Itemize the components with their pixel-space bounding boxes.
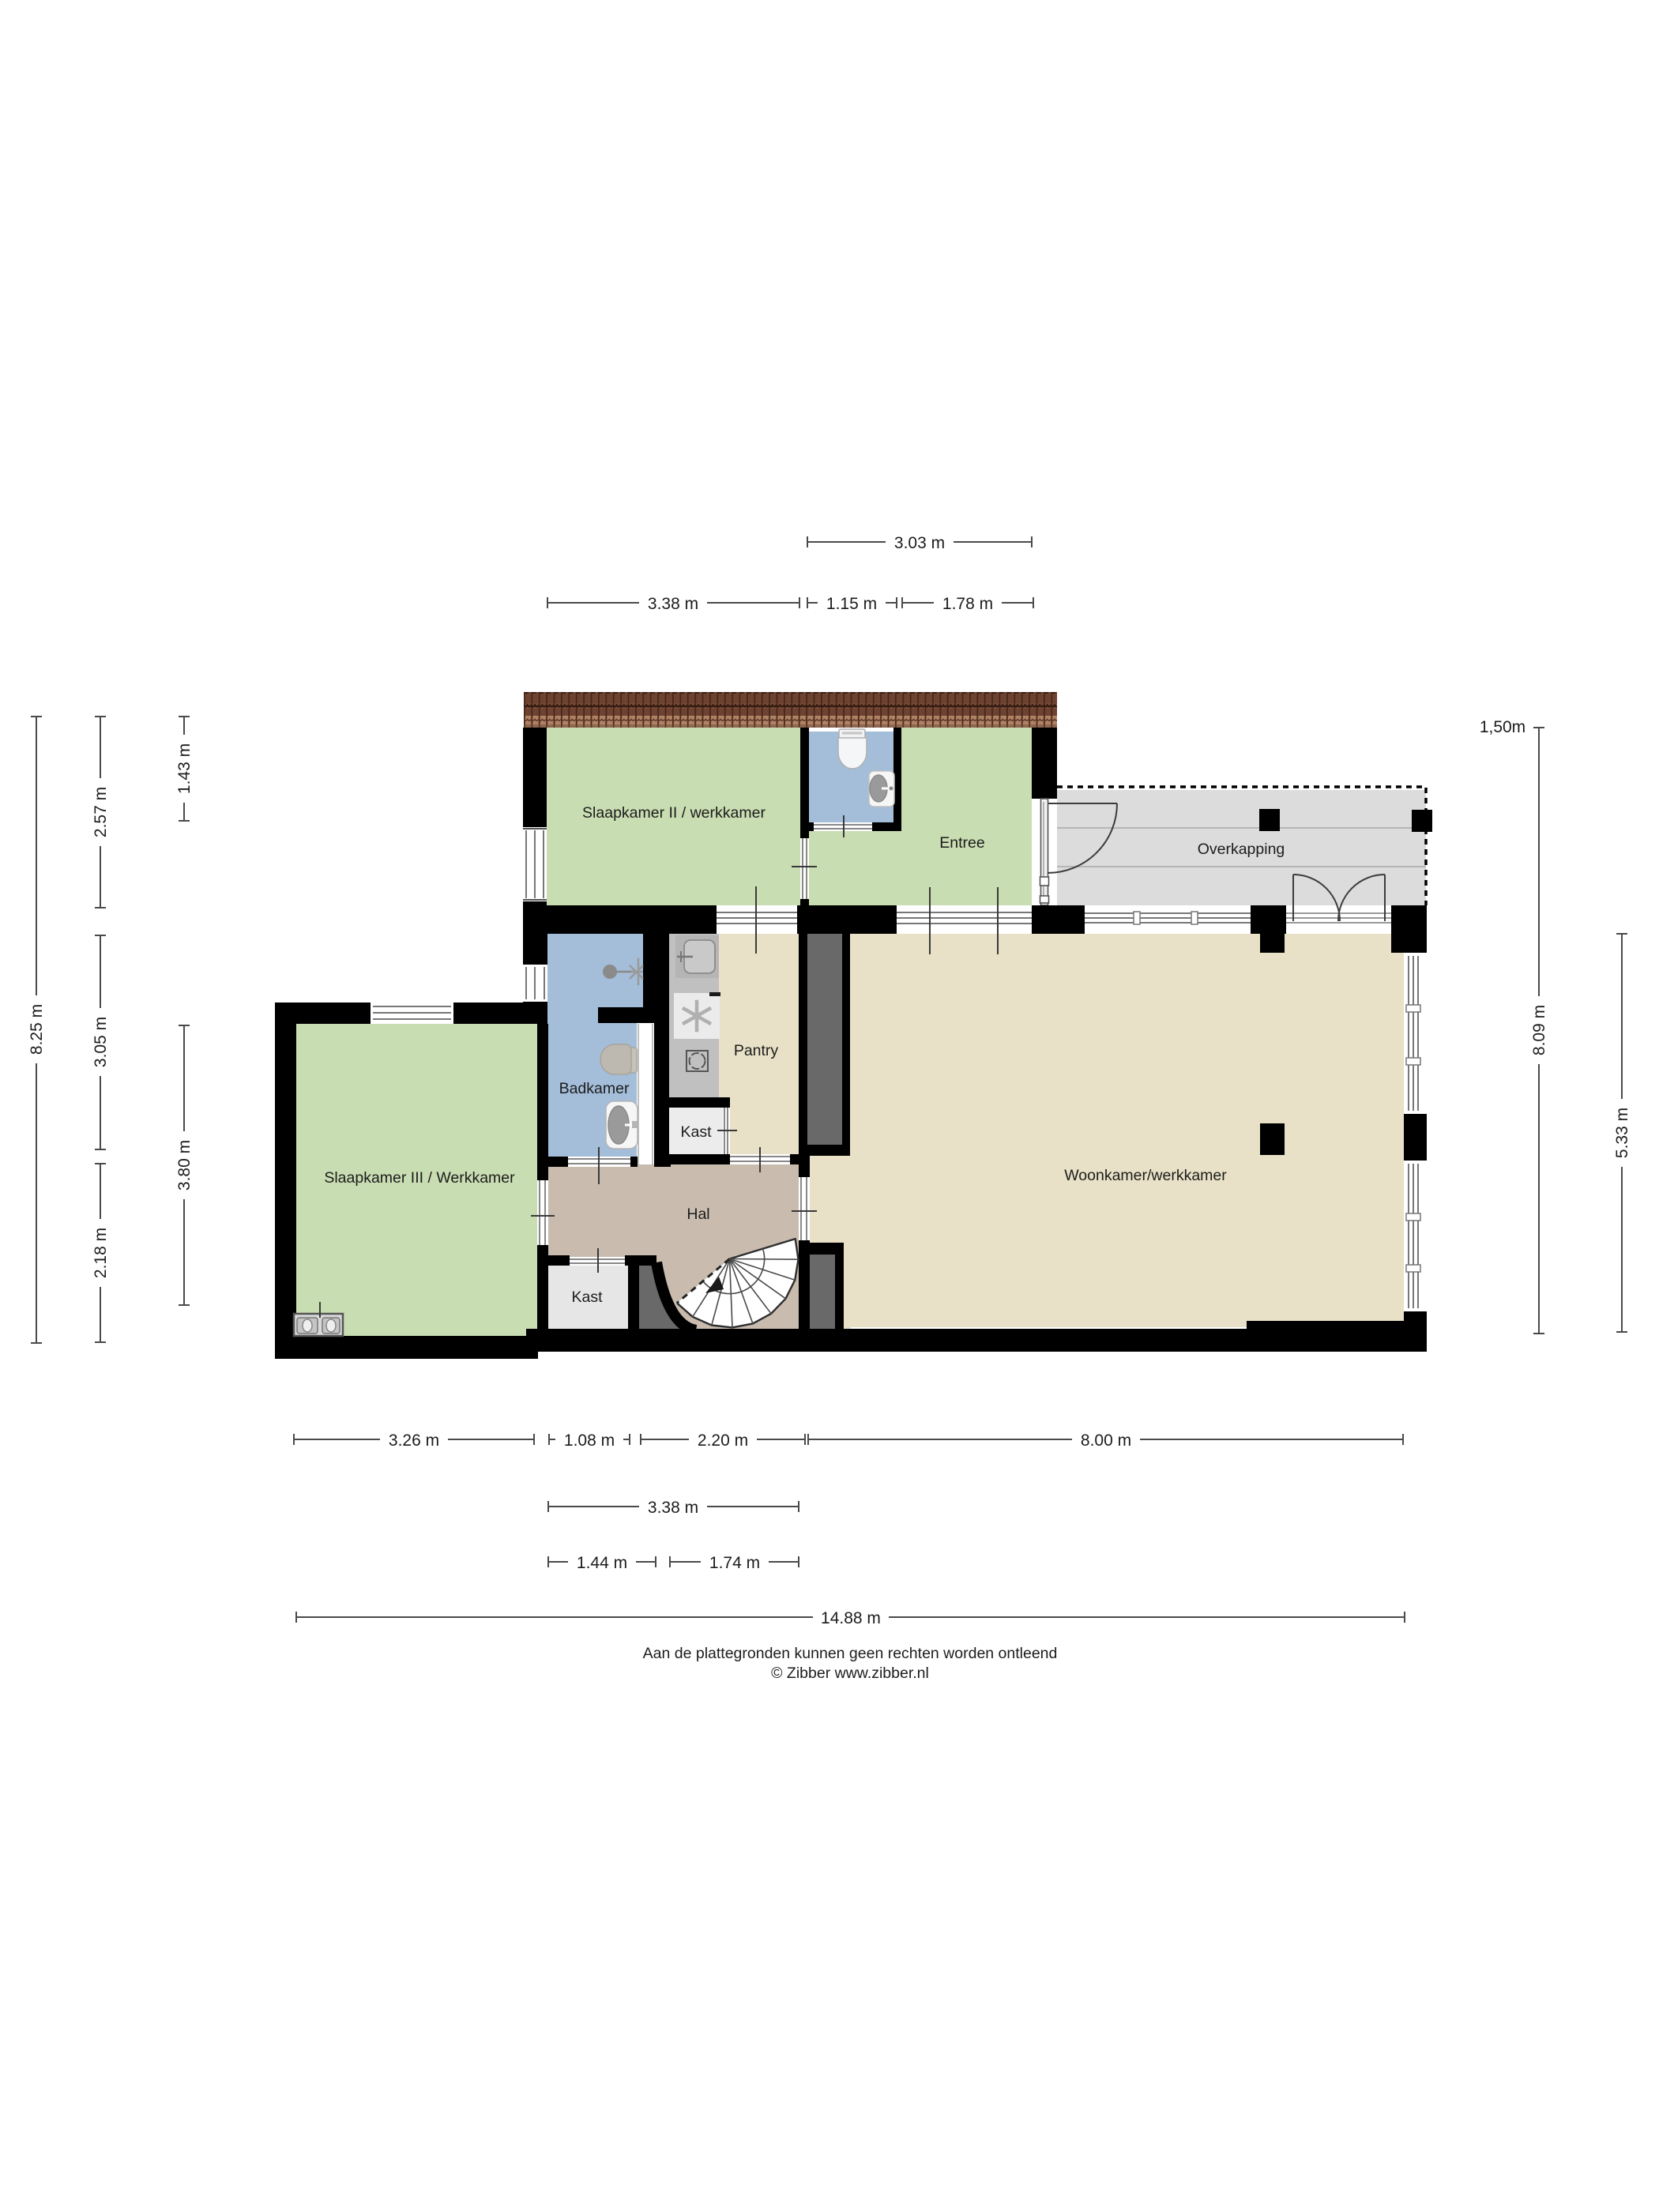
svg-text:Woonkamer/werkkamer: Woonkamer/werkkamer — [1064, 1167, 1227, 1184]
svg-text:Badkamer: Badkamer — [559, 1080, 630, 1097]
svg-text:Overkapping: Overkapping — [1198, 841, 1285, 858]
svg-text:© Zibber www.zibber.nl: © Zibber www.zibber.nl — [771, 1665, 929, 1682]
svg-text:Pantry: Pantry — [734, 1042, 779, 1059]
svg-text:8.09 m: 8.09 m — [1530, 1005, 1548, 1055]
svg-text:1.15 m: 1.15 m — [826, 595, 877, 613]
svg-text:5.33 m: 5.33 m — [1613, 1108, 1631, 1158]
svg-text:14.88 m: 14.88 m — [821, 1609, 881, 1627]
svg-text:3.80 m: 3.80 m — [175, 1140, 194, 1191]
svg-text:Aan de plattegronden kunnen ge: Aan de plattegronden kunnen geen rechten… — [643, 1645, 1058, 1662]
svg-text:2.18 m: 2.18 m — [92, 1228, 110, 1278]
svg-text:Kast: Kast — [571, 1288, 603, 1306]
svg-text:3.05 m: 3.05 m — [92, 1017, 110, 1067]
svg-text:3.38 m: 3.38 m — [648, 595, 698, 613]
svg-text:Kast: Kast — [680, 1123, 712, 1141]
svg-text:3.26 m: 3.26 m — [389, 1431, 439, 1450]
svg-text:8.00 m: 8.00 m — [1081, 1431, 1131, 1450]
svg-text:1.78 m: 1.78 m — [942, 595, 993, 613]
svg-text:1.74 m: 1.74 m — [709, 1554, 760, 1572]
svg-text:1.08 m: 1.08 m — [564, 1431, 615, 1450]
svg-text:Slaapkamer III / Werkkamer: Slaapkamer III / Werkkamer — [324, 1169, 515, 1187]
svg-text:Hal: Hal — [687, 1206, 709, 1223]
svg-text:2.57 m: 2.57 m — [92, 787, 110, 837]
svg-text:8.25 m: 8.25 m — [28, 1004, 46, 1055]
svg-text:1,50m: 1,50m — [1480, 718, 1525, 736]
svg-text:1.43 m: 1.43 m — [175, 743, 194, 794]
svg-text:2.20 m: 2.20 m — [698, 1431, 748, 1450]
svg-text:1.44 m: 1.44 m — [577, 1554, 627, 1572]
svg-text:3.03 m: 3.03 m — [894, 534, 945, 552]
svg-text:Slaapkamer II / werkkamer: Slaapkamer II / werkkamer — [582, 804, 766, 822]
svg-text:Entree: Entree — [939, 834, 984, 852]
svg-text:3.38 m: 3.38 m — [648, 1499, 698, 1517]
